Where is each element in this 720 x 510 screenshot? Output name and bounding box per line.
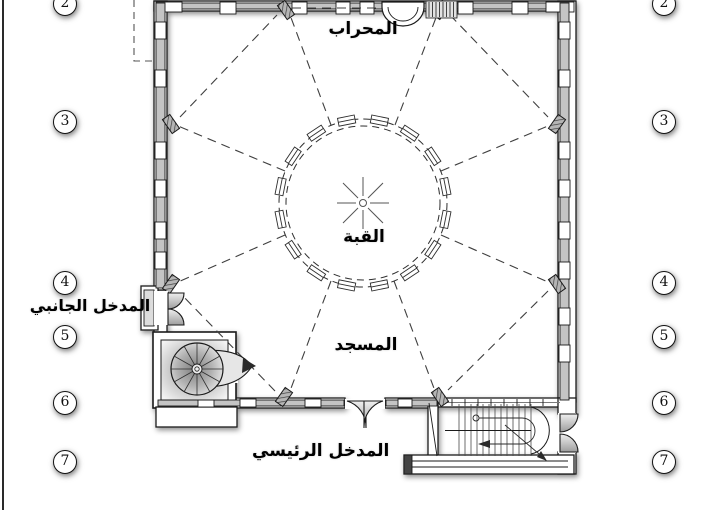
grid-bubble-right-4: 4 bbox=[652, 271, 676, 295]
minbar-steps bbox=[426, 1, 457, 18]
stair-landing-arc bbox=[531, 407, 549, 454]
dome-ring-pads bbox=[275, 115, 451, 291]
grid-bubble-left-3: 3 bbox=[53, 110, 77, 134]
side-entrance-label: المدخل الجانبي bbox=[25, 297, 155, 315]
floor-plan-page: المحراب القبة المسجد المدخل الجانبي المد… bbox=[0, 0, 720, 510]
grid-bubble-left-5: 5 bbox=[53, 325, 77, 349]
grid-bubble-left-4: 4 bbox=[53, 271, 77, 295]
side-entrance-door bbox=[168, 293, 184, 325]
stair-walk-line bbox=[473, 415, 547, 461]
reference-dashed-corner bbox=[134, 0, 153, 61]
grid-bubble-left-7: 7 bbox=[53, 450, 77, 474]
mosque-label: المسجد bbox=[316, 336, 416, 355]
grid-bubble-right-6: 6 bbox=[652, 391, 676, 415]
floor-plan-drawing bbox=[0, 0, 720, 510]
stair-bottom-wall bbox=[404, 455, 574, 474]
dome-outer-circle bbox=[279, 119, 447, 287]
grid-bubble-right-3: 3 bbox=[652, 110, 676, 134]
dome-inner-circle bbox=[286, 126, 440, 280]
grid-bubble-right-5: 5 bbox=[652, 325, 676, 349]
mihrab-label: المحراب bbox=[303, 20, 423, 39]
dome-ring bbox=[275, 115, 451, 291]
grid-bubble-left-6: 6 bbox=[53, 391, 77, 415]
main-entrance-label: المدخل الرئيسي bbox=[252, 442, 388, 461]
dome-label: القبة bbox=[314, 228, 414, 247]
entry-platform bbox=[156, 407, 237, 427]
main-staircase bbox=[445, 404, 549, 461]
dome-center-star bbox=[337, 177, 389, 229]
spiral-staircase bbox=[171, 343, 256, 395]
grid-bubble-right-7: 7 bbox=[652, 450, 676, 474]
